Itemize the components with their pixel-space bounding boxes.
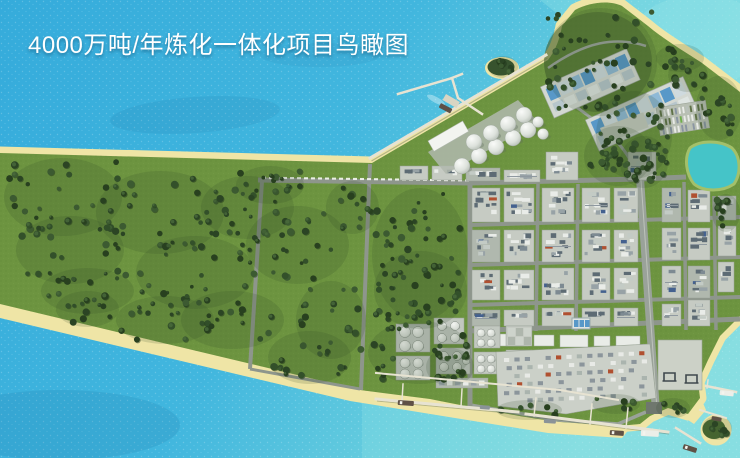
page-title: 4000万吨/年炼化一体化项目鸟瞰图 xyxy=(28,25,409,60)
grid-road-ns-2 xyxy=(536,184,538,331)
grid-road-ns-4 xyxy=(684,182,686,330)
lagoon-water xyxy=(687,142,740,190)
lagoon xyxy=(687,142,740,190)
east-pier-1-trestle xyxy=(707,380,708,388)
scene-svg xyxy=(0,0,740,458)
crane-yard xyxy=(658,340,702,390)
aerial-view-rendering: 4000万吨/年炼化一体化项目鸟瞰图 xyxy=(0,0,740,458)
grid-road-ns-3 xyxy=(576,184,578,331)
